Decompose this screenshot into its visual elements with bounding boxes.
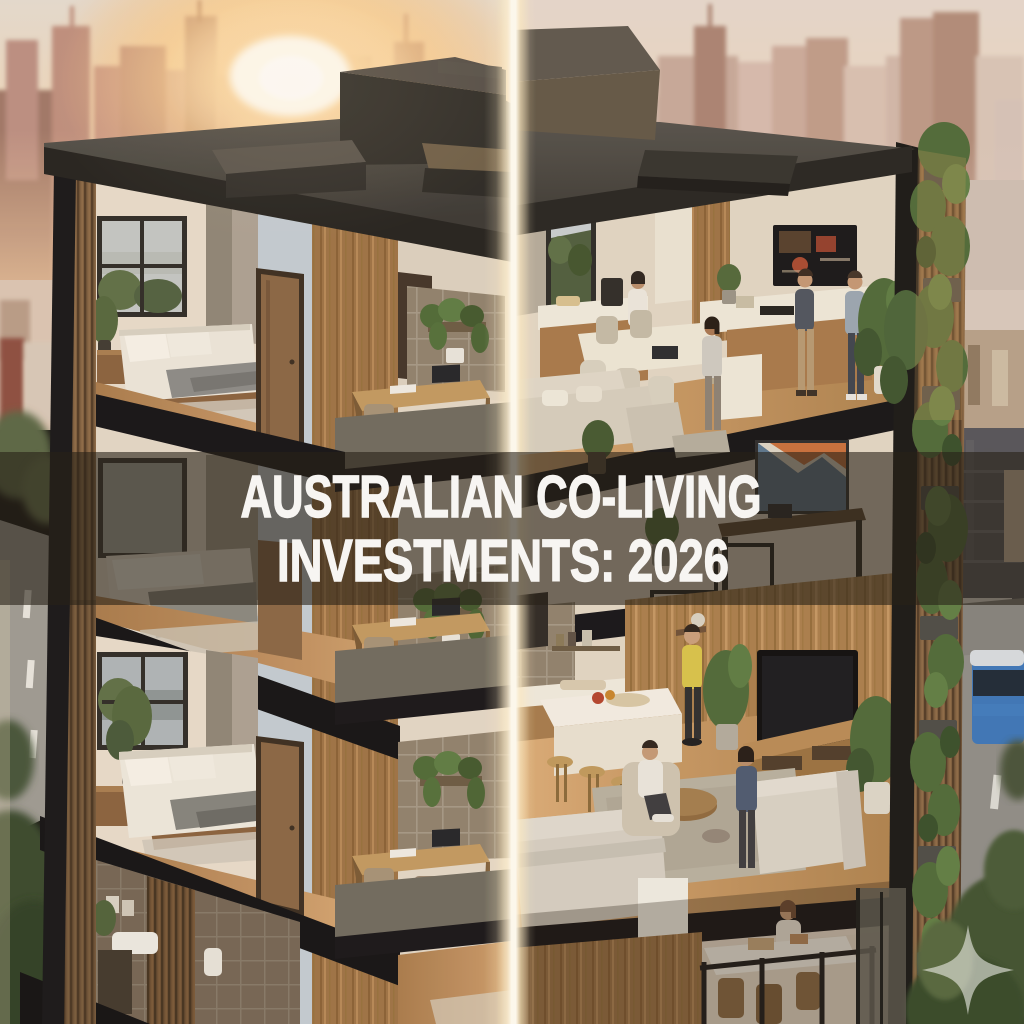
svg-text:INVESTMENTS: 2026: INVESTMENTS: 2026	[277, 528, 729, 594]
svg-text:AUSTRALIAN CO-LIVING: AUSTRALIAN CO-LIVING	[241, 464, 762, 530]
